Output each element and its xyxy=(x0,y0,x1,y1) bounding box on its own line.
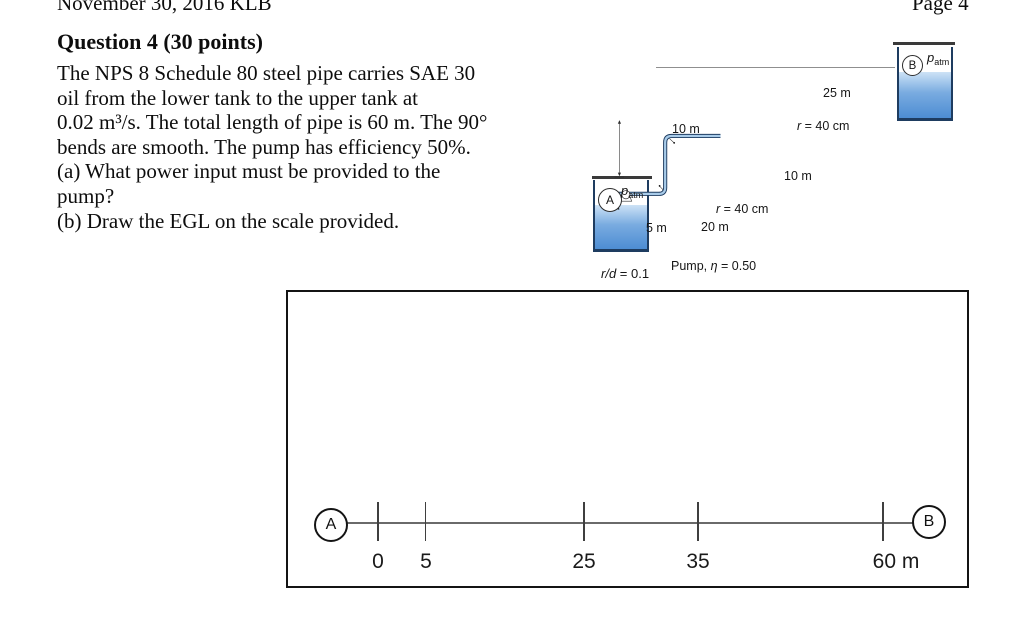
riser-length-label: 10 m xyxy=(784,169,812,183)
upper-bend-leader-dot xyxy=(673,142,675,144)
scale-tick xyxy=(425,502,427,541)
pump-label-text: Pump, xyxy=(671,259,711,273)
egl-scale-box[interactable]: A B 0 5 25 35 60 m xyxy=(286,290,969,588)
radius-value: = 40 cm xyxy=(801,119,849,133)
header-date: November 30, 2016 KLB xyxy=(57,0,272,16)
scale-tick xyxy=(377,502,379,541)
tank-b-node-badge: B xyxy=(902,55,923,76)
pressure-subscript: atm xyxy=(628,190,643,200)
upper-bend-radius-label: r = 40 cm xyxy=(797,119,849,133)
scale-tick-label: 0 xyxy=(372,550,384,574)
pump-label: Pump, η = 0.50 xyxy=(671,259,756,273)
scale-tick xyxy=(882,502,884,541)
tank-a-letter: A xyxy=(606,193,614,207)
scale-tick-label: 35 xyxy=(686,550,709,574)
header-page-number: Page 4 xyxy=(912,0,969,16)
scale-node-a: A xyxy=(314,508,348,542)
height-arrow-down-head xyxy=(618,173,621,177)
top-run-length-label: 25 m xyxy=(823,86,851,100)
tank-b-letter: B xyxy=(909,60,917,72)
scale-node-b: B xyxy=(912,505,946,539)
discharge-length-label: 20 m xyxy=(701,220,729,234)
question-body: The NPS 8 Schedule 80 steel pipe carries… xyxy=(57,61,577,233)
pipe-svg-overlay xyxy=(585,30,1024,290)
lower-bend-leader-line xyxy=(660,186,664,190)
scale-tick xyxy=(697,502,699,541)
upper-bend-leader-line xyxy=(669,139,674,143)
radius-value: = 40 cm xyxy=(720,202,768,216)
tank-a-node-badge: A xyxy=(598,188,622,212)
height-dimension-label: 10 m xyxy=(672,122,700,136)
entry-ratio-value: = 0.1 xyxy=(616,266,649,281)
tank-a-pressure-label: patm xyxy=(621,183,643,198)
pressure-subscript: atm xyxy=(934,57,949,67)
lower-bend-radius-label: r = 40 cm xyxy=(716,202,768,216)
entry-loss-label: r/d = 0.1 xyxy=(601,266,649,281)
exam-page: November 30, 2016 KLB Page 4 Question 4 … xyxy=(0,0,1024,633)
scale-node-b-letter: B xyxy=(924,513,935,531)
scale-tick-label: 5 xyxy=(420,550,432,574)
scale-tick xyxy=(583,502,585,541)
tank-b-pressure-label: patm xyxy=(927,50,949,65)
entry-ratio-symbol: r/d xyxy=(601,266,616,281)
scale-node-a-letter: A xyxy=(326,516,337,534)
efficiency-symbol: η xyxy=(711,259,718,273)
efficiency-value: = 0.50 xyxy=(718,259,757,273)
suction-length-label: 5 m xyxy=(646,221,667,235)
height-arrow-up-head xyxy=(618,120,621,124)
scale-tick-label: 25 xyxy=(572,550,595,574)
scale-axis-line xyxy=(344,522,914,524)
scale-tick-label: 60 m xyxy=(873,550,920,574)
question-title: Question 4 (30 points) xyxy=(57,29,263,55)
